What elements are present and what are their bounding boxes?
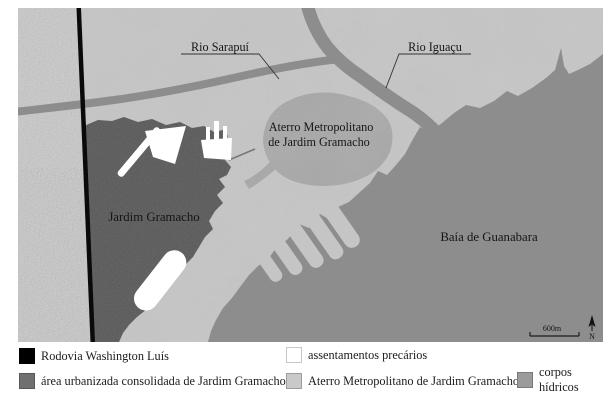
settlement-spike bbox=[214, 121, 219, 141]
legend-item-assentamentos: assentamentos precários bbox=[286, 346, 427, 364]
north-arrow-label: N bbox=[589, 332, 595, 341]
legend-swatch-assentamentos bbox=[286, 347, 302, 363]
legend-item-aterro: Aterro Metropolitano de Jardim Gramacho bbox=[286, 372, 519, 390]
legend-item-corpos-hidricos: corpos hídricos bbox=[517, 371, 611, 389]
legend-label: corpos hídricos bbox=[539, 365, 611, 395]
legend-swatch-rodovia bbox=[19, 348, 35, 364]
label-aterro-line1: Aterro Metropolitano bbox=[269, 120, 374, 134]
map-canvas: Rio Sarapuí Rio Iguaçu Aterro Metropolit… bbox=[18, 8, 603, 342]
scale-bar-label: 600m bbox=[543, 324, 562, 333]
label-baia-de-guanabara: Baía de Guanabara bbox=[440, 230, 538, 244]
legend-label: área urbanizada consolidada de Jardim Gr… bbox=[41, 374, 286, 389]
label-rio-iguacu: Rio Iguaçu bbox=[408, 40, 462, 54]
legend-label: Rodovia Washington Luís bbox=[41, 349, 169, 364]
label-jardim-gramacho: Jardim Gramacho bbox=[108, 210, 199, 224]
map-figure: Rio Sarapuí Rio Iguaçu Aterro Metropolit… bbox=[0, 0, 611, 402]
label-rio-sarapui: Rio Sarapuí bbox=[191, 40, 249, 54]
legend-item-rodovia: Rodovia Washington Luís bbox=[19, 347, 169, 365]
settlement-spike bbox=[206, 127, 210, 143]
settlement-spike bbox=[223, 126, 227, 142]
legend-item-area-urbanizada: área urbanizada consolidada de Jardim Gr… bbox=[19, 372, 286, 390]
legend-label: Aterro Metropolitano de Jardim Gramacho bbox=[308, 374, 519, 389]
legend-swatch-corpos-hidricos bbox=[517, 372, 533, 388]
legend-label: assentamentos precários bbox=[308, 348, 427, 363]
map-svg: Rio Sarapuí Rio Iguaçu Aterro Metropolit… bbox=[18, 8, 603, 342]
label-aterro-line2: de Jardim Gramacho bbox=[268, 135, 370, 149]
settlement-blob bbox=[201, 138, 232, 160]
legend-swatch-area-urbanizada bbox=[19, 373, 35, 389]
legend-swatch-aterro bbox=[286, 373, 302, 389]
